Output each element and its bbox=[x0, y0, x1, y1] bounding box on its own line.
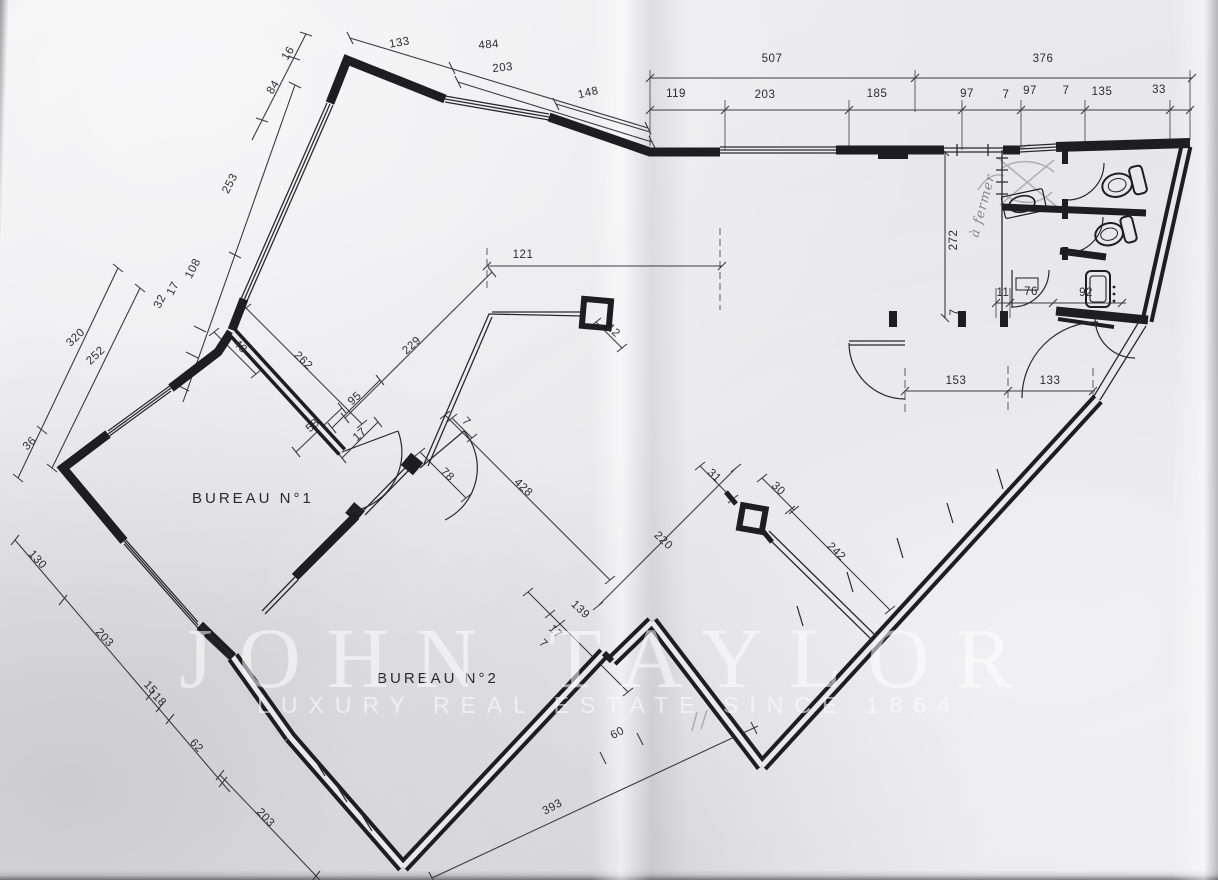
dimension-label: 7 bbox=[536, 637, 549, 650]
dimension-label: 185 bbox=[867, 88, 888, 100]
interior-walls bbox=[233, 147, 1146, 614]
dimension-label: 242 bbox=[824, 540, 847, 563]
column bbox=[582, 299, 611, 328]
dimension-label: 376 bbox=[1033, 53, 1054, 65]
dimension-label: 62 bbox=[187, 737, 205, 755]
dimension-label: 119 bbox=[666, 88, 686, 100]
room-label-bureau-1: BUREAU N°1 bbox=[192, 490, 314, 507]
toilet-icon bbox=[1099, 165, 1147, 203]
dimension-label: 203 bbox=[492, 61, 514, 75]
dimension-label: 252 bbox=[84, 344, 107, 367]
handwritten-note: à fermer bbox=[967, 173, 998, 240]
dimension-label: 30 bbox=[769, 480, 787, 498]
dimension-label: 7 bbox=[459, 415, 472, 428]
dimension-label: 484 bbox=[478, 38, 500, 52]
dimension-label: 133 bbox=[388, 35, 410, 50]
dimension-label: 76 bbox=[1024, 286, 1038, 298]
dimension-label: 33 bbox=[1152, 84, 1166, 96]
dimension-label: 203 bbox=[755, 89, 776, 101]
dimension-label: 320 bbox=[64, 326, 87, 349]
dimension-label: 203 bbox=[254, 806, 277, 829]
dimension-label: 272 bbox=[948, 230, 960, 251]
dimension-label: 148 bbox=[577, 85, 600, 101]
floor-plan-drawing: BUREAU N°1 BUREAU N°2 à fermer 168413348… bbox=[0, 0, 1218, 880]
dimension-label: 60 bbox=[609, 725, 627, 742]
dimension-labels: 1684133484203148507376119203185977977135… bbox=[21, 35, 1166, 829]
dimension-label: 97 bbox=[1023, 85, 1037, 97]
wall-notch bbox=[878, 150, 908, 159]
dimension-label: 7 bbox=[949, 309, 961, 316]
dimension-label: 97 bbox=[960, 88, 974, 100]
dimension-label: 262 bbox=[291, 349, 314, 372]
dimension-label: 11 bbox=[997, 287, 1010, 299]
dimension-label: 84 bbox=[265, 78, 283, 96]
dimension-label: 253 bbox=[220, 172, 240, 196]
dimension-label: 17 bbox=[165, 280, 182, 298]
dimension-label: 428 bbox=[511, 476, 534, 499]
dimension-label: 7 bbox=[1003, 89, 1010, 101]
dimension-label: 507 bbox=[762, 53, 783, 65]
dimension-label: 393 bbox=[541, 797, 565, 817]
dimension-label: 108 bbox=[183, 257, 203, 281]
dimension-label: 92 bbox=[1079, 287, 1093, 299]
dimension-label: 130 bbox=[26, 548, 49, 571]
dimension-label: 121 bbox=[513, 249, 534, 261]
dimension-label: 153 bbox=[946, 375, 967, 387]
dimension-label: 139 bbox=[568, 598, 591, 621]
column bbox=[739, 505, 766, 532]
dimension-label: 133 bbox=[1040, 375, 1061, 387]
dimension-label: 229 bbox=[400, 334, 423, 357]
dimension-label: 203 bbox=[93, 626, 116, 649]
dimension-label: 16 bbox=[280, 44, 297, 62]
room-label-bureau-2: BUREAU N°2 bbox=[377, 670, 499, 687]
dimension-label: 17 bbox=[351, 426, 369, 444]
dimension-label: 31 bbox=[705, 467, 723, 485]
dimension-label: 36 bbox=[21, 435, 39, 453]
dimension-lines bbox=[11, 32, 1196, 880]
scanned-floor-plan: BUREAU N°1 BUREAU N°2 à fermer 168413348… bbox=[0, 0, 1218, 880]
dimension-label: 135 bbox=[1092, 86, 1113, 98]
column bbox=[401, 453, 424, 476]
dimension-label: 95 bbox=[346, 390, 364, 408]
dimension-label: 32 bbox=[152, 293, 169, 311]
dimension-label: 78 bbox=[438, 466, 456, 484]
dimension-label: 7 bbox=[1063, 85, 1070, 97]
